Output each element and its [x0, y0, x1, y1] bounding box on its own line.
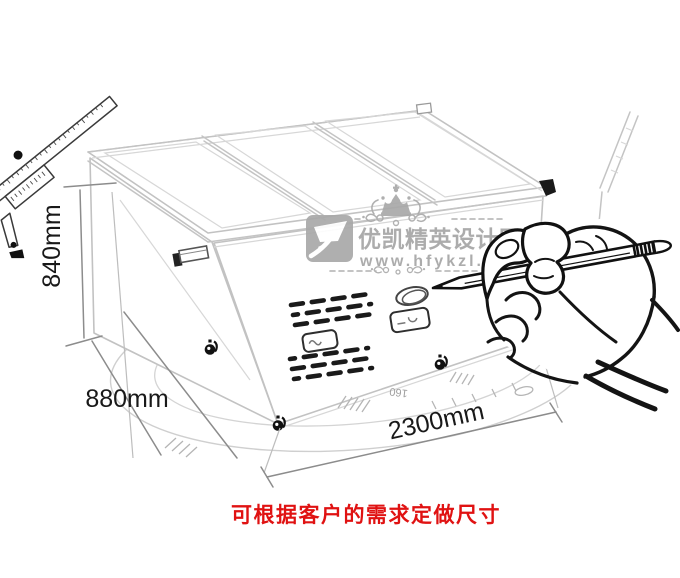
customization-note: 可根据客户的需求定做尺寸	[231, 503, 501, 527]
watermark-logo-icon	[306, 215, 353, 262]
caliper-lock-screw	[12, 149, 25, 162]
dimension-label-height: 840mm	[38, 204, 66, 287]
compressor-name-plate	[302, 329, 338, 352]
dimension-label-length: 2300mm	[386, 397, 487, 445]
dimension-label-depth: 880mm	[85, 385, 168, 413]
product-dimension-diagram: 160 840mm 880mm 2300mm	[0, 0, 680, 578]
protractor-label: 160	[389, 385, 409, 399]
lid-back-bracket	[417, 103, 432, 114]
